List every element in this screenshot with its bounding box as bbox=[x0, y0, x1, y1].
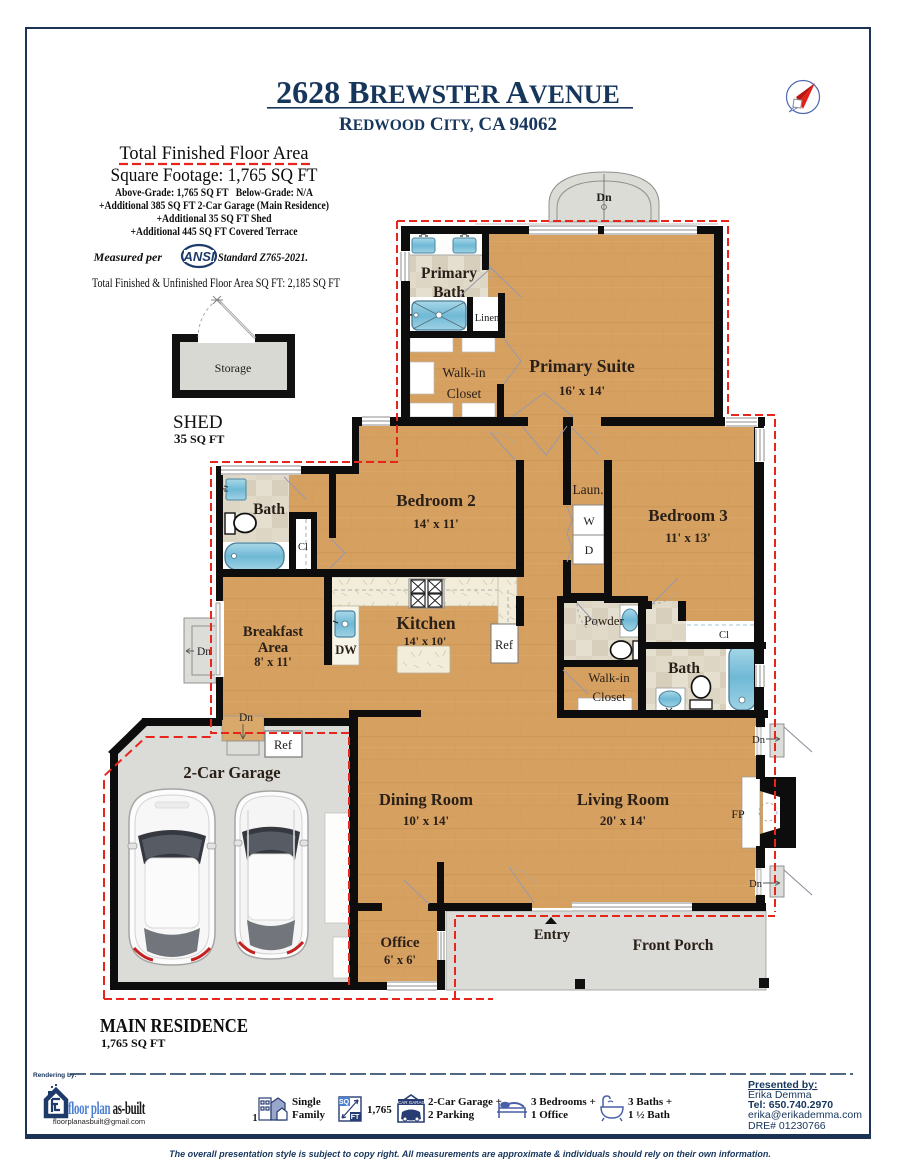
svg-text:14' x 11': 14' x 11' bbox=[413, 516, 459, 531]
svg-text:Living Room: Living Room bbox=[577, 790, 669, 809]
svg-text:Area: Area bbox=[258, 640, 289, 656]
svg-text:Storage: Storage bbox=[215, 361, 252, 375]
svg-text:Cl: Cl bbox=[298, 542, 308, 553]
svg-text:6' x 6': 6' x 6' bbox=[384, 953, 416, 967]
svg-text:floor plan as-built: floor plan as-built bbox=[68, 1100, 145, 1119]
svg-text:Office: Office bbox=[380, 935, 419, 951]
svg-text:Measured per: Measured per bbox=[93, 250, 163, 264]
svg-text:Closet: Closet bbox=[447, 386, 482, 401]
svg-text:SHED: SHED bbox=[173, 412, 223, 433]
svg-text:MAIN RESIDENCE: MAIN RESIDENCE bbox=[100, 1016, 248, 1037]
svg-text:Bath: Bath bbox=[668, 660, 700, 677]
svg-text:Dining Room: Dining Room bbox=[379, 790, 473, 809]
svg-text:Powder: Powder bbox=[584, 613, 624, 628]
svg-text:Entry: Entry bbox=[534, 927, 571, 943]
svg-text:Bedroom 2: Bedroom 2 bbox=[396, 491, 476, 510]
svg-text:+Additional 35 SQ FT Shed: +Additional 35 SQ FT Shed bbox=[157, 213, 272, 225]
svg-text:1 ½ Bath: 1 ½ Bath bbox=[628, 1109, 670, 1121]
svg-text:REDWOOD CITY, CA 94062: REDWOOD CITY, CA 94062 bbox=[339, 114, 557, 135]
svg-text:Bedroom 3: Bedroom 3 bbox=[648, 506, 728, 525]
svg-text:Dn: Dn bbox=[752, 735, 766, 746]
svg-text:Primary Suite: Primary Suite bbox=[529, 356, 635, 376]
svg-text:Linen: Linen bbox=[475, 313, 500, 324]
svg-text:DW: DW bbox=[335, 643, 357, 657]
svg-text:1 Office: 1 Office bbox=[531, 1109, 568, 1121]
svg-text:Rendering by:: Rendering by: bbox=[33, 1072, 77, 1079]
svg-text:35 SQ FT: 35 SQ FT bbox=[174, 431, 224, 446]
svg-text:3 Baths +: 3 Baths + bbox=[628, 1096, 672, 1108]
svg-text:Above-Grade: 1,765 SQ FT Bel: Above-Grade: 1,765 SQ FT Below-Grade: N/… bbox=[115, 187, 314, 199]
svg-text:Total Finished & Unfinished Fl: Total Finished & Unfinished Floor Area S… bbox=[92, 276, 340, 290]
svg-text:2 Parking: 2 Parking bbox=[428, 1109, 475, 1121]
svg-text:10' x 14': 10' x 14' bbox=[403, 813, 449, 828]
svg-text:2-Car Garage +: 2-Car Garage + bbox=[428, 1096, 502, 1108]
svg-text:Laun.: Laun. bbox=[572, 482, 603, 497]
svg-text:SQ: SQ bbox=[339, 1099, 350, 1106]
svg-text:3 Bedrooms +: 3 Bedrooms + bbox=[531, 1096, 596, 1108]
svg-text:Dn: Dn bbox=[596, 190, 612, 204]
svg-text:floorplanasbuilt@gmail.com: floorplanasbuilt@gmail.com bbox=[53, 1117, 145, 1126]
svg-text:20' x 14': 20' x 14' bbox=[600, 813, 646, 828]
svg-text:16' x 14': 16' x 14' bbox=[559, 383, 605, 398]
svg-text:DRE# 01230766: DRE# 01230766 bbox=[748, 1120, 826, 1132]
svg-text:ANSI: ANSI bbox=[182, 249, 214, 264]
svg-text:1,765: 1,765 bbox=[367, 1104, 392, 1116]
svg-text:Primary: Primary bbox=[421, 265, 477, 282]
svg-text:Kitchen: Kitchen bbox=[396, 613, 456, 633]
svg-text:Dn: Dn bbox=[749, 879, 763, 890]
svg-text:1: 1 bbox=[253, 1113, 258, 1124]
svg-text:Walk-in: Walk-in bbox=[588, 670, 630, 685]
svg-text:2-Car Garage: 2-Car Garage bbox=[183, 763, 280, 782]
svg-text:W: W bbox=[583, 514, 595, 528]
svg-text:Ref: Ref bbox=[274, 738, 293, 752]
svg-text:Single: Single bbox=[292, 1096, 321, 1108]
svg-text:+Additional 385 SQ FT 2-Car Ga: +Additional 385 SQ FT 2-Car Garage (Main… bbox=[99, 200, 329, 212]
svg-text:Bath: Bath bbox=[433, 284, 465, 301]
svg-text:Bath: Bath bbox=[253, 501, 285, 518]
svg-text:2-CAR GARAGE: 2-CAR GARAGE bbox=[394, 1100, 428, 1105]
svg-text:Breakfast: Breakfast bbox=[243, 624, 303, 640]
svg-text:Family: Family bbox=[292, 1109, 325, 1121]
svg-text:11' x 13': 11' x 13' bbox=[665, 530, 711, 545]
svg-text:Ref: Ref bbox=[495, 638, 514, 652]
svg-text:Square Footage: 1,765 SQ FT: Square Footage: 1,765 SQ FT bbox=[111, 165, 318, 186]
svg-text:Total Finished Floor Area: Total Finished Floor Area bbox=[120, 143, 310, 164]
svg-text:FT: FT bbox=[351, 1114, 360, 1121]
svg-text:Closet: Closet bbox=[592, 689, 626, 704]
svg-text:1,765 SQ FT: 1,765 SQ FT bbox=[101, 1036, 165, 1050]
svg-text:Walk-in: Walk-in bbox=[442, 365, 485, 380]
svg-text:Cl: Cl bbox=[719, 630, 729, 641]
svg-text:+Additional 445 SQ FT Covered: +Additional 445 SQ FT Covered Terrace bbox=[131, 226, 298, 238]
svg-text:Front Porch: Front Porch bbox=[633, 937, 714, 954]
svg-text:Dn: Dn bbox=[239, 712, 253, 724]
svg-text:D: D bbox=[585, 543, 594, 557]
svg-text:Dn: Dn bbox=[197, 646, 211, 658]
svg-text:14' x 10': 14' x 10' bbox=[404, 634, 447, 648]
svg-text:The overall presentation style: The overall presentation style is subjec… bbox=[169, 1149, 771, 1159]
svg-text:FP: FP bbox=[731, 807, 745, 821]
svg-text:2628 BREWSTER AVENUE: 2628 BREWSTER AVENUE bbox=[276, 74, 620, 110]
svg-text:Standard Z765-2021.: Standard Z765-2021. bbox=[218, 250, 308, 264]
svg-text:8' x 11': 8' x 11' bbox=[254, 655, 292, 669]
